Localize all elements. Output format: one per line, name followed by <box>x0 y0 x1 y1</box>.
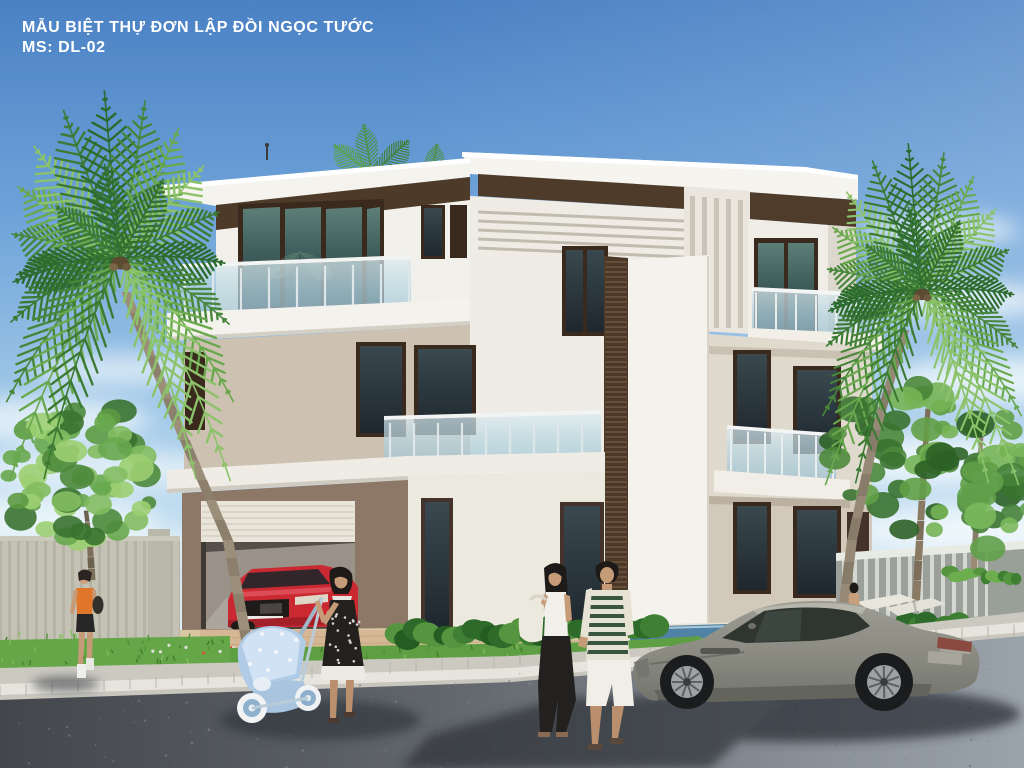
svg-text:MS: DL-02: MS: DL-02 <box>22 39 106 56</box>
svg-text:MẪU BIỆT THỰ ĐƠN LẬP ĐỒI NGỌC: MẪU BIỆT THỰ ĐƠN LẬP ĐỒI NGỌC TƯỚC <box>22 17 374 36</box>
